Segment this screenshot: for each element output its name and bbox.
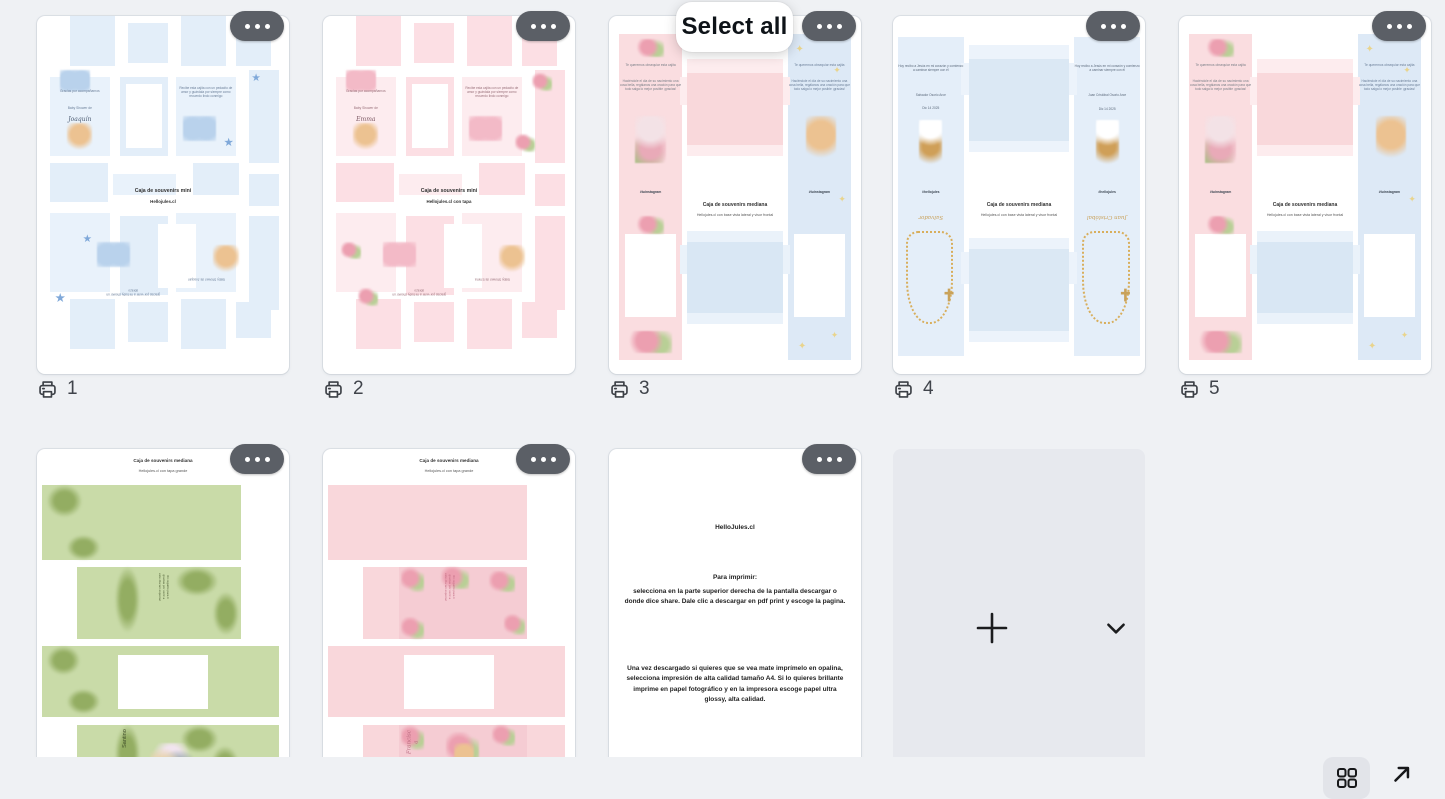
page-menu-button[interactable] xyxy=(802,444,856,474)
star-yellow-decor-icon: ✦ xyxy=(1403,66,1411,74)
bear-decor-icon xyxy=(353,123,378,152)
page-label: 1 xyxy=(37,378,78,400)
box-net-tile xyxy=(241,646,279,718)
chalice-decor-icon xyxy=(1096,120,1119,167)
thumbnail-text: Dic 14 2025 xyxy=(1074,107,1140,111)
bow-pink-decor-icon xyxy=(383,242,416,267)
box-net-tile xyxy=(969,331,1070,342)
box-net-tile xyxy=(969,59,1070,141)
thumbnail-text: Gracias por acompañarnos xyxy=(50,89,110,93)
thumbnail-text: Un regalito para ti gracias por venir a … xyxy=(443,572,455,602)
box-net-tile xyxy=(969,45,1070,59)
thumbnail-text: Caja de souvenirs mediana xyxy=(956,202,1082,209)
add-page-cell[interactable] xyxy=(893,449,1145,757)
box-net-tile xyxy=(356,16,401,66)
leaf-decor-icon xyxy=(211,746,239,757)
box-net-tile xyxy=(687,231,783,242)
thumbnail-text: Santino xyxy=(122,726,129,751)
thumbnail-text: Baby Shower de xyxy=(336,106,396,110)
box-net-tile xyxy=(113,485,242,560)
star-blue-decor-icon: ★ xyxy=(55,292,65,303)
thumbnail-text: gracias por venir a mi baby shower un ab… xyxy=(389,288,449,296)
thumbnail-text: Haciéndole el día de su nacimiento una c… xyxy=(1189,79,1252,91)
chalice-decor-icon xyxy=(919,120,942,167)
box-net-tile xyxy=(1257,59,1353,73)
box-net-tile xyxy=(1195,234,1245,316)
bear-decor-icon xyxy=(1376,116,1406,163)
star-yellow-decor-icon: ✦ xyxy=(1368,342,1376,351)
thumbnail-text: Un regalito para ti gracias por venir a … xyxy=(157,572,169,602)
thumbnail-text: Juan Cristóbal Osorio Arce xyxy=(1074,93,1140,97)
page-card-5[interactable]: ✦✦✦✦✦Te queremos obsequiar esta cajitaHa… xyxy=(1179,16,1431,374)
page-card-8[interactable]: HelloJules.clPara imprimir:selecciona en… xyxy=(609,449,861,757)
bow-blue-decor-icon xyxy=(60,70,90,91)
flower-decor-icon xyxy=(515,134,535,152)
box-net-tile xyxy=(336,163,394,202)
thumbnail-text: Caja de souvenirs mini xyxy=(113,188,214,195)
thumbnail-text: Dic 14 2025 xyxy=(898,106,964,110)
flower-decor-icon xyxy=(532,73,552,91)
thumbnail-text: Recibe esta cajita con un pedacito de am… xyxy=(176,86,236,98)
leaf-decor-icon xyxy=(115,567,140,631)
thumbnail-text: #tuinstagram xyxy=(619,190,682,194)
box-net-tile xyxy=(467,16,512,66)
bow-pink-decor-icon xyxy=(346,70,376,91)
star-blue-decor-icon: ★ xyxy=(251,73,261,82)
add-page-options-button[interactable] xyxy=(1103,615,1129,644)
cross-decor-icon: ✝ xyxy=(942,288,952,302)
printer-icon xyxy=(323,379,344,400)
open-external-button[interactable] xyxy=(1389,761,1415,790)
box-net-tile xyxy=(404,655,495,709)
thumbnail-text: Hoy recibo a Jesús en mi corazón y comie… xyxy=(898,64,964,72)
page-thumbnail: Caja de souvenirs medianaHellojules.cl c… xyxy=(37,449,289,757)
star-yellow-decor-icon: ✦ xyxy=(1401,331,1409,339)
page-number: 5 xyxy=(1209,378,1220,400)
box-net-tile xyxy=(118,655,209,709)
box-net-tile xyxy=(77,725,112,757)
thumbnail-text: Caja de souvenirs mediana xyxy=(373,458,524,464)
thumbnail-text: #hellojules xyxy=(1074,190,1140,194)
box-net-tile xyxy=(527,725,565,757)
animals-decor-icon xyxy=(150,743,193,757)
star-yellow-decor-icon: ✦ xyxy=(831,331,839,339)
page-thumbnail: ✝✝Hoy recibo a Jesús en mi corazón y com… xyxy=(893,16,1145,374)
box-net-tile xyxy=(363,725,398,757)
box-net-tile xyxy=(794,234,844,316)
thumbnail-text: Salvador Osorio Arce xyxy=(898,93,964,97)
thumbnail-text: Hellojules.cl xyxy=(113,199,214,205)
page-label: 5 xyxy=(1179,378,1220,400)
flower-decor-icon xyxy=(1199,331,1242,352)
select-all-button[interactable]: Select all xyxy=(676,2,793,52)
thumbnail-text: Francisca xyxy=(407,730,421,755)
box-net-tile xyxy=(414,23,454,62)
flower-decor-icon xyxy=(637,39,665,57)
box-net-tile xyxy=(1257,145,1353,156)
page-label: 2 xyxy=(323,378,364,400)
thumbnail-text: Una vez descargado si quieres que se vea… xyxy=(624,664,846,706)
box-net-tile xyxy=(783,245,791,274)
thumbnail-text: Te queremos obsequiar esta cajita xyxy=(788,63,851,67)
box-net-tile xyxy=(70,16,115,66)
page-label: 3 xyxy=(609,378,650,400)
printer-icon xyxy=(37,379,58,400)
thumbnail-text: Haciéndole el día de su nacimiento una c… xyxy=(788,79,851,91)
box-net-tile xyxy=(356,299,401,349)
thumbnail-text: gracias por venir a mi baby shower un ab… xyxy=(103,288,163,296)
grid-view-button[interactable] xyxy=(1323,757,1370,799)
leaf-decor-icon xyxy=(213,592,238,635)
flower-decor-icon xyxy=(358,288,378,306)
box-net-tile xyxy=(969,141,1070,152)
thumbnail-text: Baby Shower de Emma xyxy=(462,277,522,281)
thumbnail-text: HelloJules.cl xyxy=(624,524,846,532)
leaf-decor-icon xyxy=(47,485,82,517)
bear-decor-icon xyxy=(67,123,92,152)
star-yellow-decor-icon: ✦ xyxy=(833,66,841,74)
box-net-tile xyxy=(128,23,168,62)
star-yellow-decor-icon: ✦ xyxy=(838,195,846,203)
flower-decor-icon xyxy=(637,216,665,234)
leaf-decor-icon xyxy=(176,567,219,596)
page-card-7[interactable]: Caja de souvenirs medianaHellojules.cl c… xyxy=(323,449,575,757)
flower-decor-icon xyxy=(504,614,524,635)
star-yellow-decor-icon: ✦ xyxy=(795,45,803,54)
box-net-tile xyxy=(687,73,783,145)
star-yellow-decor-icon: ✦ xyxy=(1408,195,1416,203)
page-card-1[interactable]: ★★★★Gracias por acompañarnosBaby Shower … xyxy=(37,16,289,374)
page-thumbnail: HelloJules.clPara imprimir:selecciona en… xyxy=(609,449,861,757)
box-net-tile xyxy=(249,174,279,206)
thumbnail-text: Haciéndole el día de su nacimiento una c… xyxy=(1358,79,1421,91)
page-menu-button[interactable] xyxy=(1372,11,1426,41)
bow-blue-decor-icon xyxy=(183,116,216,141)
box-net-tile xyxy=(1364,234,1414,316)
page-menu-button[interactable] xyxy=(230,11,284,41)
thumbnail-text: Te queremos obsequiar esta cajita xyxy=(1189,63,1252,67)
thumbnail-text: Te queremos obsequiar esta cajita xyxy=(1358,63,1421,67)
bow-pink-decor-icon xyxy=(469,116,502,141)
box-net-tile xyxy=(687,242,783,314)
box-net-tile xyxy=(70,299,115,349)
printer-icon xyxy=(893,379,914,400)
box-net-tile xyxy=(687,313,783,324)
box-net-tile xyxy=(1069,252,1077,284)
box-net-tile xyxy=(1257,231,1353,242)
thumbnail-text: Hellojules.cl con tapa grande xyxy=(87,469,238,474)
bear-decor-icon xyxy=(806,116,836,163)
flower-decor-icon xyxy=(629,331,672,352)
page-card-6[interactable]: Caja de souvenirs medianaHellojules.cl c… xyxy=(37,449,289,757)
printer-icon xyxy=(1179,379,1200,400)
thumbnail-text: #tuinstagram xyxy=(1189,190,1252,194)
box-net-tile xyxy=(181,16,226,66)
star-yellow-decor-icon: ✦ xyxy=(798,342,806,351)
thumbnail-text: Caja de souvenirs mediana xyxy=(672,202,798,209)
page-menu-button[interactable] xyxy=(516,11,570,41)
box-net-tile xyxy=(969,249,1070,331)
page-number: 2 xyxy=(353,378,364,400)
cross-decor-icon: ✝ xyxy=(1119,288,1129,302)
box-net-tile xyxy=(1353,245,1361,274)
rosary-decor-icon xyxy=(1082,231,1130,324)
thumbnail-text: #tuinstagram xyxy=(788,190,851,194)
box-net-tile xyxy=(1257,73,1353,145)
flower-decor-icon xyxy=(1207,39,1235,57)
box-net-tile xyxy=(126,84,161,148)
box-net-tile xyxy=(969,238,1070,249)
box-net-tile xyxy=(236,302,271,338)
leaf-decor-icon xyxy=(67,689,100,714)
bear-decor-icon xyxy=(499,245,524,274)
page-thumbnail: Gracias por acompañarnosBaby Shower deEm… xyxy=(323,16,575,374)
thumbnail-text: Haciéndole el día de su nacimiento una c… xyxy=(619,79,682,91)
bear-decor-icon xyxy=(213,245,238,274)
page-grid: ★★★★Gracias por acompañarnosBaby Shower … xyxy=(0,0,1445,757)
flower-decor-icon xyxy=(341,242,361,260)
thumbnail-text: Hellojules.cl con base vista lateral y v… xyxy=(659,213,810,218)
rosary-decor-icon xyxy=(906,231,954,324)
flower-decor-icon xyxy=(492,725,515,746)
box-net-tile xyxy=(522,302,557,338)
thumbnail-text: Hoy recibo a Jesús en mi corazón y comie… xyxy=(1074,64,1140,72)
page-number: 3 xyxy=(639,378,650,400)
page-thumbnail: ✦✦✦✦✦Te queremos obsequiar esta cajitaHa… xyxy=(1179,16,1431,374)
box-net-tile xyxy=(1257,242,1353,314)
thumbnail-text: Para imprimir: xyxy=(624,573,846,583)
box-net-tile xyxy=(128,302,168,341)
page-thumbnail: ✦✦✦✦✦Te queremos obsequiar esta cajitaHa… xyxy=(609,16,861,374)
box-net-tile xyxy=(680,245,688,274)
box-net-tile xyxy=(77,567,112,639)
star-blue-decor-icon: ★ xyxy=(223,138,233,148)
box-net-tile xyxy=(241,725,279,757)
page-menu-button[interactable] xyxy=(516,444,570,474)
flower-decor-icon xyxy=(401,617,424,638)
bunny-decor-icon xyxy=(635,116,665,163)
thumbnail-text: Hellojules.cl con base vista lateral y v… xyxy=(943,213,1094,218)
thumbnail-text: Caja de souvenirs mini xyxy=(399,188,500,195)
thumbnail-text: selecciona en la parte superior derecha … xyxy=(624,587,846,608)
page-card-3[interactable]: ✦✦✦✦✦Te queremos obsequiar esta cajitaHa… xyxy=(609,16,861,374)
thumbnail-text: Caja de souvenirs mediana xyxy=(87,458,238,464)
thumbnail-text: Baby Shower de Joaquín xyxy=(176,277,236,281)
thumbnail-text: Hellojules.cl con tapa xyxy=(399,199,500,205)
box-net-tile xyxy=(527,646,565,718)
page-menu-button[interactable] xyxy=(1086,11,1140,41)
star-blue-decor-icon: ★ xyxy=(82,234,92,243)
add-page-button[interactable] xyxy=(970,606,1014,653)
page-number: 4 xyxy=(923,378,934,400)
box-net-tile xyxy=(363,567,398,639)
box-net-tile xyxy=(414,302,454,341)
thumbnail-text: Baby Shower de xyxy=(50,106,110,110)
thumbnail-text: Caja de souvenirs mediana xyxy=(1242,202,1368,209)
chevron-down-icon xyxy=(1103,615,1129,641)
thumbnail-text: Emma xyxy=(336,116,396,124)
page-thumbnail: ★★★★Gracias por acompañarnosBaby Shower … xyxy=(37,16,289,374)
flower-decor-icon xyxy=(401,567,424,592)
box-net-tile xyxy=(535,174,565,206)
leaf-decor-icon xyxy=(47,646,80,675)
box-net-tile xyxy=(399,485,528,560)
page-menu-button[interactable] xyxy=(802,11,856,41)
printer-icon xyxy=(609,379,630,400)
star-yellow-decor-icon: ✦ xyxy=(1365,45,1373,54)
bow-blue-decor-icon xyxy=(97,242,130,267)
page-card-2[interactable]: Gracias por acompañarnosBaby Shower deEm… xyxy=(323,16,575,374)
page-card-4[interactable]: ✝✝Hoy recibo a Jesús en mi corazón y com… xyxy=(893,16,1145,374)
thumbnail-text: Recibe esta cajita con un pedacito de am… xyxy=(462,86,522,98)
bear-decor-icon xyxy=(454,743,474,757)
thumbnail-text: #hellojules xyxy=(898,190,964,194)
thumbnail-text: Hellojules.cl con tapa grande xyxy=(373,469,524,474)
box-net-tile xyxy=(687,145,783,156)
page-number: 1 xyxy=(67,378,78,400)
box-net-tile xyxy=(961,252,969,284)
box-net-tile xyxy=(328,485,399,560)
flower-decor-icon xyxy=(1207,216,1235,234)
box-net-tile xyxy=(249,216,279,309)
bunny-decor-icon xyxy=(1205,116,1235,163)
box-net-tile xyxy=(50,163,108,202)
page-label: 4 xyxy=(893,378,934,400)
leaf-decor-icon xyxy=(67,535,100,560)
box-net-tile xyxy=(1250,245,1258,274)
box-net-tile xyxy=(412,84,447,148)
page-thumbnail: Caja de souvenirs medianaHellojules.cl c… xyxy=(323,449,575,757)
box-net-tile xyxy=(467,299,512,349)
thumbnail-text: Te queremos obsequiar esta cajita xyxy=(619,63,682,67)
thumbnail-text: #tuinstagram xyxy=(1358,190,1421,194)
grid-view-icon xyxy=(1335,766,1359,790)
box-net-tile xyxy=(535,216,565,309)
box-net-tile xyxy=(1257,313,1353,324)
flower-decor-icon xyxy=(489,571,514,592)
box-net-tile xyxy=(181,299,226,349)
thumbnail-text: Gracias por acompañarnos xyxy=(336,89,396,93)
thumbnail-text: Joaquín xyxy=(50,116,110,124)
box-net-tile xyxy=(328,646,399,718)
box-net-tile xyxy=(687,59,783,73)
page-menu-button[interactable] xyxy=(230,444,284,474)
plus-icon xyxy=(970,606,1014,650)
box-net-tile xyxy=(625,234,675,316)
arrow-up-right-icon xyxy=(1389,761,1415,787)
thumbnail-text: Hellojules.cl con base vista lateral y v… xyxy=(1229,213,1380,218)
